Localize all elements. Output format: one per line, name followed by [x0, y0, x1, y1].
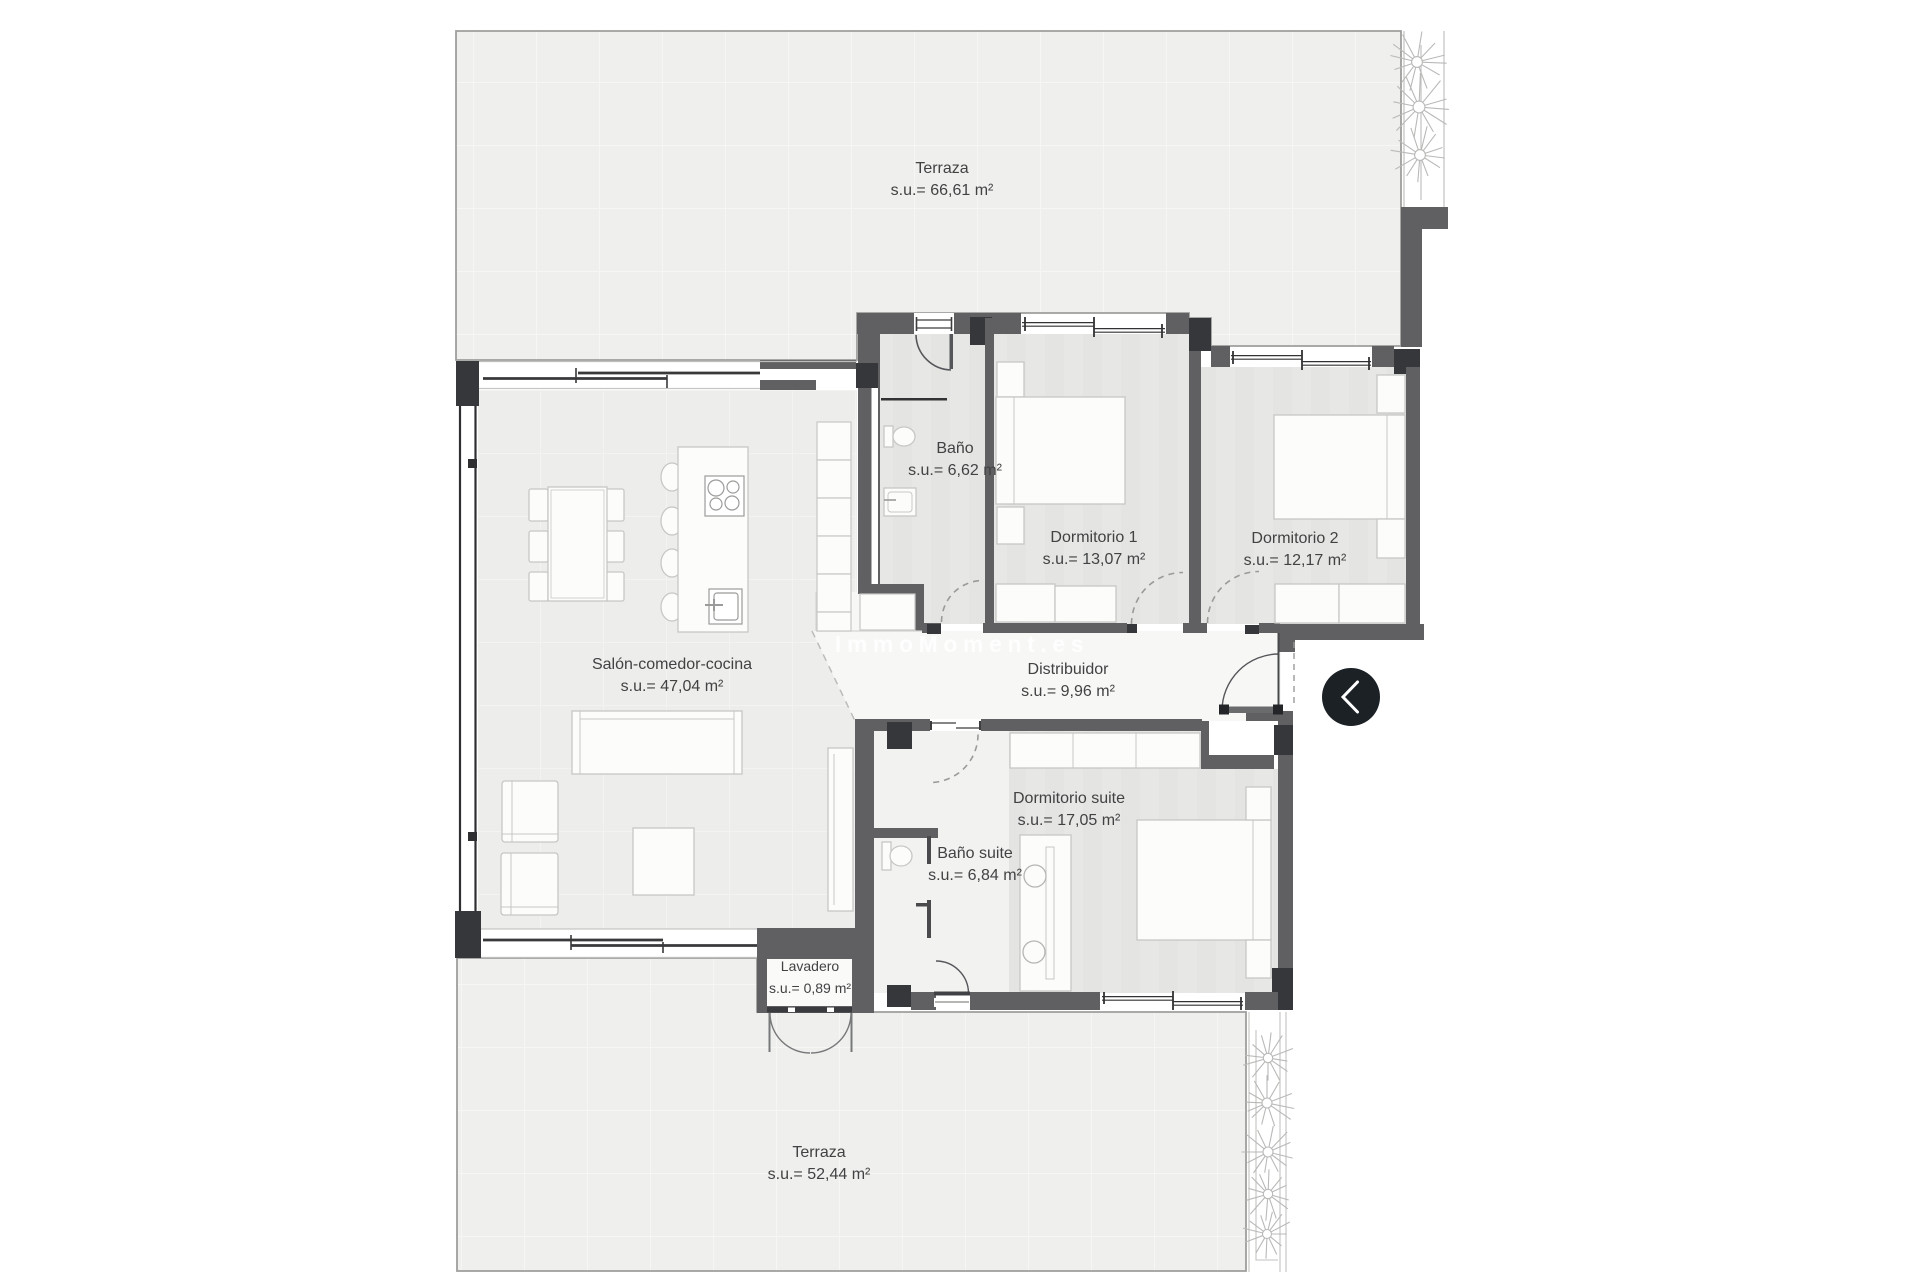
svg-text:s.u.= 13,07 m²: s.u.= 13,07 m² — [1043, 551, 1146, 568]
svg-text:ImmoMoment.es: ImmoMoment.es — [835, 631, 1089, 657]
svg-text:Terraza: Terraza — [915, 160, 968, 177]
svg-text:s.u.= 6,84 m²: s.u.= 6,84 m² — [928, 867, 1022, 884]
svg-text:Dormitorio 1: Dormitorio 1 — [1050, 529, 1137, 546]
svg-text:s.u.= 47,04 m²: s.u.= 47,04 m² — [621, 678, 724, 695]
svg-text:s.u.= 66,61 m²: s.u.= 66,61 m² — [891, 182, 994, 199]
svg-text:s.u.= 12,17 m²: s.u.= 12,17 m² — [1244, 552, 1347, 569]
svg-text:Baño: Baño — [936, 440, 973, 457]
svg-text:Salón-comedor-cocina: Salón-comedor-cocina — [592, 656, 752, 673]
svg-text:s.u.= 17,05 m²: s.u.= 17,05 m² — [1018, 812, 1121, 829]
svg-text:Baño suite: Baño suite — [937, 845, 1013, 862]
svg-text:s.u.= 9,96 m²: s.u.= 9,96 m² — [1021, 683, 1115, 700]
svg-text:s.u.= 52,44 m²: s.u.= 52,44 m² — [768, 1166, 871, 1183]
svg-text:Dormitorio suite: Dormitorio suite — [1013, 790, 1125, 807]
svg-text:Distribuidor: Distribuidor — [1028, 661, 1110, 678]
svg-text:Lavadero: Lavadero — [781, 958, 840, 974]
svg-text:s.u.= 0,89 m²: s.u.= 0,89 m² — [769, 980, 851, 996]
svg-text:Dormitorio 2: Dormitorio 2 — [1251, 530, 1338, 547]
svg-text:s.u.= 6,62 m²: s.u.= 6,62 m² — [908, 462, 1002, 479]
svg-text:Terraza: Terraza — [792, 1144, 845, 1161]
